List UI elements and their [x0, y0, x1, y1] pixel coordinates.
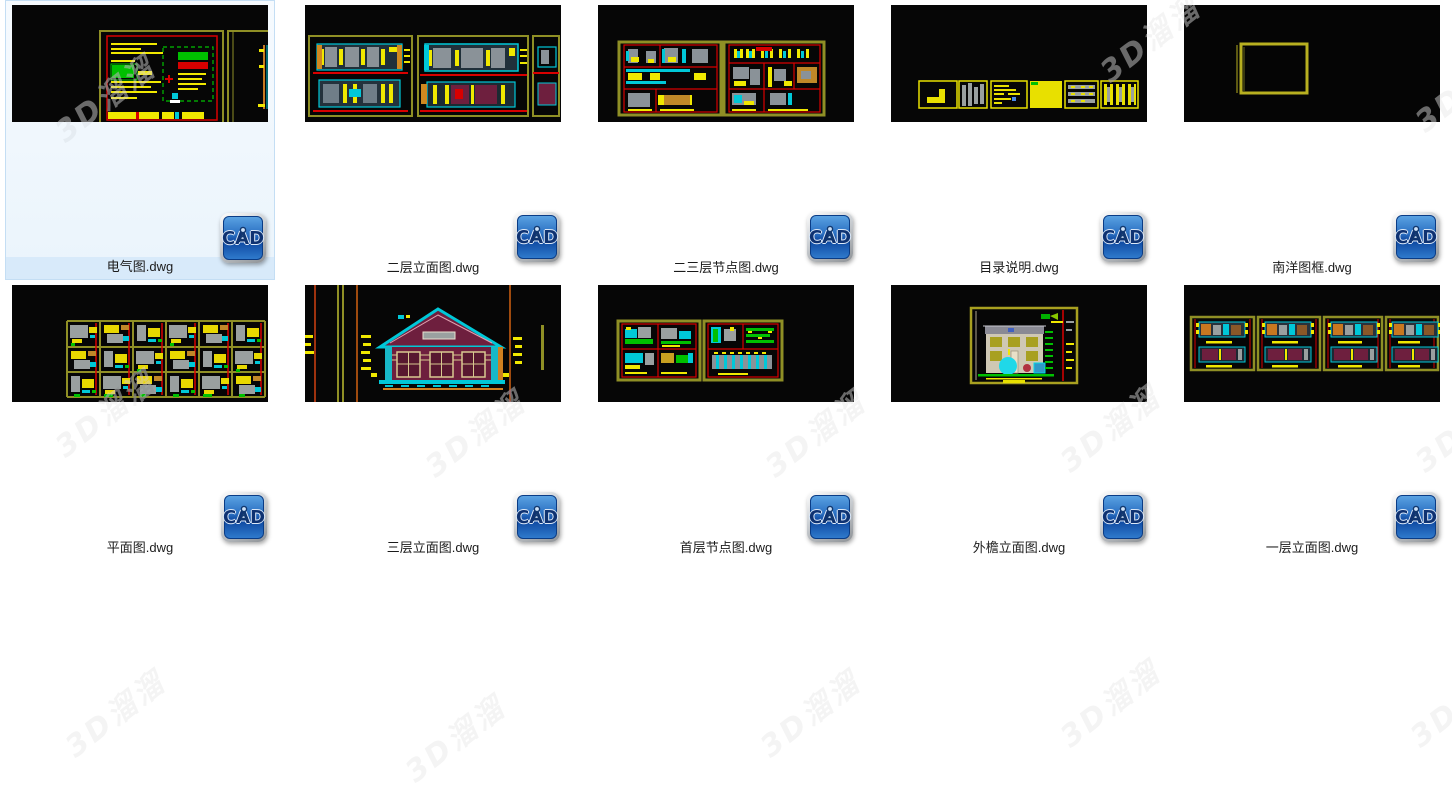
thumbnail-drawing	[891, 5, 1147, 122]
dwg-thumbnail[interactable]	[305, 5, 561, 122]
cad-file-icon: CAD	[1393, 492, 1439, 542]
file-card-nodes23[interactable]: CAD 二三层节点图.dwg	[591, 0, 861, 280]
watermark-text: 3D溜溜	[394, 683, 514, 790]
file-card-elevation2[interactable]: CAD 二层立面图.dwg	[298, 0, 568, 280]
cad-icon-face: CAD	[1103, 495, 1143, 539]
watermark-text: 3D溜溜	[1399, 648, 1452, 755]
thumbnail-drawing	[1184, 5, 1440, 122]
thumbnail-drawing	[891, 285, 1147, 402]
thumbnail-drawing	[1184, 285, 1440, 402]
watermark-text: 3D溜溜	[749, 658, 869, 765]
cad-file-icon: CAD	[1100, 492, 1146, 542]
cad-file-icon: CAD	[1393, 212, 1439, 262]
file-card-plan[interactable]: CAD 平面图.dwg	[5, 280, 275, 560]
watermark-text: 3D溜溜	[54, 658, 174, 765]
radio-tower-icon	[236, 226, 250, 244]
cad-icon-face: CAD	[224, 495, 264, 539]
radio-tower-icon	[823, 225, 837, 243]
radio-tower-icon	[530, 225, 544, 243]
file-card-catalog[interactable]: CAD 目录说明.dwg	[884, 0, 1154, 280]
file-card-nodes1[interactable]: CAD 首层节点图.dwg	[591, 280, 861, 560]
cad-icon-face: CAD	[810, 495, 850, 539]
cad-icon-face: CAD	[810, 215, 850, 259]
radio-tower-icon	[530, 505, 544, 523]
file-card-exterior[interactable]: CAD 外檐立面图.dwg	[884, 280, 1154, 560]
radio-tower-icon	[1409, 225, 1423, 243]
cad-file-icon: CAD	[514, 492, 560, 542]
thumbnail-drawing	[598, 285, 854, 402]
thumbnail-drawing	[12, 5, 268, 122]
watermark-text: 3D溜溜	[394, 683, 514, 790]
cad-icon-face: CAD	[1396, 495, 1436, 539]
thumbnail-drawing	[12, 285, 268, 402]
cad-file-icon: CAD	[807, 492, 853, 542]
dwg-thumbnail[interactable]	[12, 285, 268, 402]
file-card-frame[interactable]: CAD 南洋图框.dwg	[1177, 0, 1447, 280]
dwg-thumbnail[interactable]	[598, 5, 854, 122]
thumbnail-drawing	[305, 5, 561, 122]
watermark-text: 3D溜溜	[1049, 648, 1169, 755]
thumbnail-drawing	[598, 5, 854, 122]
cad-icon-face: CAD	[517, 495, 557, 539]
cad-file-icon: CAD	[221, 492, 267, 542]
watermark-text: 3D溜溜	[1049, 648, 1169, 755]
file-card-elevation3[interactable]: CAD 三层立面图.dwg	[298, 280, 568, 560]
file-card-elevation1[interactable]: CAD 一层立面图.dwg	[1177, 280, 1447, 560]
cad-icon-face: CAD	[1396, 215, 1436, 259]
dwg-thumbnail[interactable]	[305, 285, 561, 402]
cad-icon-face: CAD	[223, 216, 263, 260]
watermark-text: 3D溜溜	[749, 658, 869, 765]
cad-file-icon: CAD	[1100, 212, 1146, 262]
file-grid: CAD 电气图.dwg CAD	[5, 0, 1447, 560]
dwg-thumbnail[interactable]	[12, 5, 268, 122]
cad-file-icon: CAD	[220, 213, 266, 263]
thumbnail-drawing	[305, 285, 561, 402]
radio-tower-icon	[1116, 505, 1130, 523]
radio-tower-icon	[1116, 225, 1130, 243]
dwg-thumbnail[interactable]	[1184, 285, 1440, 402]
watermark-text: 3D溜溜	[54, 658, 174, 765]
dwg-thumbnail[interactable]	[891, 285, 1147, 402]
watermark-text: 3D溜溜	[1399, 648, 1452, 755]
file-card-electrical[interactable]: CAD 电气图.dwg	[5, 0, 275, 280]
cad-icon-face: CAD	[1103, 215, 1143, 259]
cad-icon-face: CAD	[517, 215, 557, 259]
dwg-thumbnail[interactable]	[891, 5, 1147, 122]
cad-file-icon: CAD	[807, 212, 853, 262]
dwg-thumbnail[interactable]	[1184, 5, 1440, 122]
cad-file-icon: CAD	[514, 212, 560, 262]
radio-tower-icon	[823, 505, 837, 523]
dwg-thumbnail[interactable]	[598, 285, 854, 402]
radio-tower-icon	[1409, 505, 1423, 523]
radio-tower-icon	[237, 505, 251, 523]
